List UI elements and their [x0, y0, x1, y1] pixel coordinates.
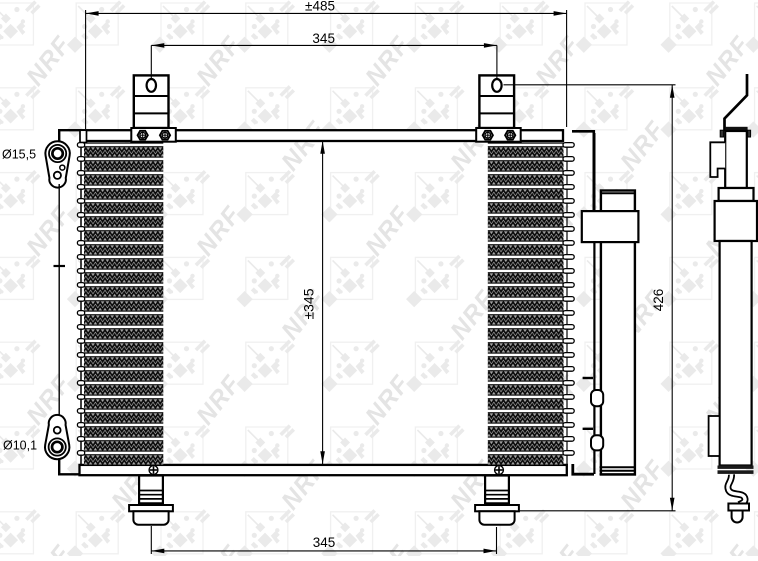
svg-text:±345: ±345 — [300, 288, 316, 319]
svg-text:Ø10,1: Ø10,1 — [3, 439, 37, 453]
svg-text:±485: ±485 — [305, 0, 335, 14]
svg-text:426: 426 — [651, 289, 666, 312]
svg-text:345: 345 — [313, 535, 336, 550]
svg-text:Ø15,5: Ø15,5 — [2, 148, 36, 162]
svg-text:345: 345 — [312, 31, 335, 46]
